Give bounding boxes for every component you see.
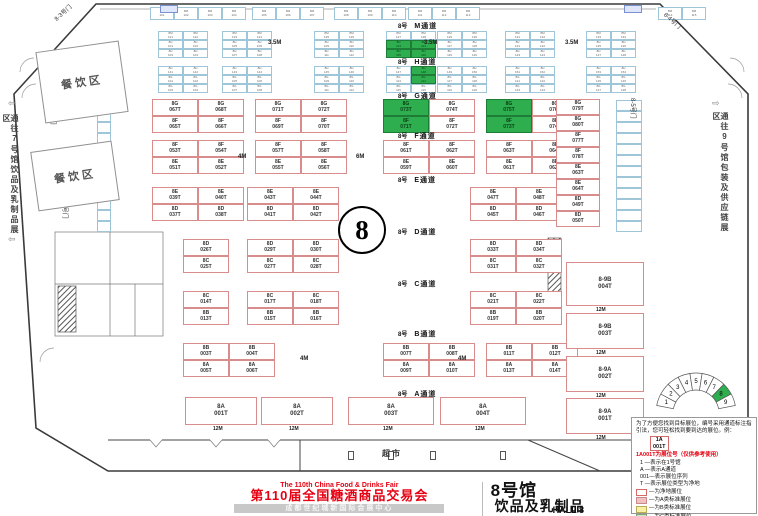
booth-code: 007T	[400, 352, 411, 358]
aisle-label: 8号H通道	[398, 57, 436, 67]
aisle-label: 8号A通道	[398, 389, 436, 399]
booth: 8F065T	[152, 116, 198, 133]
booth-code: 8-9A	[598, 367, 611, 374]
legend-example-box: 1A 001T	[650, 436, 669, 451]
booth-code: 063T	[503, 149, 514, 155]
booth: 8D045T	[470, 204, 516, 221]
hall-name-cn: 8号馆	[491, 482, 537, 499]
booth-code: 041T	[264, 213, 275, 219]
small-booth: 8H111	[314, 49, 339, 58]
small-booth: 8M126	[339, 31, 364, 40]
booth: 8C021T	[470, 291, 516, 308]
dimension-label: 4M	[300, 356, 308, 362]
booth: 8A004T	[440, 397, 526, 425]
booth-code: 061T	[503, 166, 514, 172]
small-booth: 8H148	[411, 66, 436, 75]
booth: 8E064T	[556, 179, 600, 195]
booth-code: 064T	[572, 187, 583, 193]
booth-code: 004T	[246, 352, 257, 358]
aisle-label: 8号G通道	[398, 91, 437, 101]
aisle-label: 8号E通道	[398, 175, 436, 185]
booth: 8A002T	[261, 397, 333, 425]
small-booth	[97, 221, 111, 232]
booth: 8B015T	[247, 308, 293, 325]
small-booth: 8M111	[408, 7, 432, 20]
booth-code: 030T	[310, 248, 321, 254]
booth-code: 049T	[572, 203, 583, 209]
aisle-name: D通道	[414, 229, 436, 236]
small-booth: 8M134	[611, 31, 636, 40]
small-booth: 8H144	[247, 66, 272, 75]
booth-code: 002T	[290, 411, 304, 418]
booth-code: 001T	[598, 416, 612, 423]
gate-label: 8-3号门	[52, 2, 73, 23]
small-booth: 8H103	[158, 49, 183, 58]
booth-code: 014T	[200, 300, 211, 306]
booth-code: 8-9B	[598, 324, 611, 331]
booth-code: 006T	[246, 369, 257, 375]
aisle-prefix: 8号	[398, 332, 407, 338]
aisle-name: M通道	[414, 23, 437, 30]
booth-code: 016T	[310, 317, 321, 323]
booth-code: 022T	[533, 300, 544, 306]
legend-item: T —表示展位类型为净地	[636, 481, 752, 488]
fair-title-cn: 第110届全国糖酒商品交易会	[205, 489, 474, 503]
small-booth: 8G111	[314, 84, 339, 93]
booth-code: 043T	[264, 196, 275, 202]
small-booth: 8G118	[462, 75, 487, 84]
booth-code: 014T	[549, 369, 560, 375]
booth-code: 004T	[598, 284, 612, 291]
booth-code: 072T	[446, 125, 457, 131]
booth-code: 042T	[310, 213, 321, 219]
booth-code: 040T	[215, 196, 226, 202]
booth: 8B013T	[183, 308, 229, 325]
small-booth: 8H125	[586, 40, 611, 49]
small-booth: 8M130	[462, 31, 487, 40]
booth-code: 073T	[503, 125, 514, 131]
booth: 8G080T	[556, 115, 600, 131]
aisle-prefix: 8号	[398, 392, 407, 398]
small-booth: 8G121	[505, 75, 530, 84]
small-booth: 8H126	[611, 40, 636, 49]
small-booth: 8G107	[222, 84, 247, 93]
booth: 8D030T	[293, 239, 339, 256]
booth: 8F057T	[255, 140, 301, 157]
small-booth: 8G123	[505, 84, 530, 93]
booth-code: 8A	[387, 404, 395, 411]
booth-code: 031T	[487, 265, 498, 271]
booth: 8B008T	[429, 343, 475, 360]
booth: 8F061T	[383, 140, 429, 157]
booth-code: 044T	[310, 196, 321, 202]
legend-color-rows: —为净地展位—为A类标准展位—为B类标准展位—为C类标准展位—为D类标准展位	[636, 489, 752, 516]
small-booth: 8M109	[358, 7, 382, 20]
legend-item: A —表示A通道	[636, 467, 752, 474]
small-booth: 8G108	[247, 84, 272, 93]
hall-title: 8号馆 饮品及乳制品 HALL 8 展位示意图 BEVERAGES AND DA…	[483, 482, 625, 516]
legend-row-label: —为A类标准展位	[649, 497, 691, 504]
booth: 8E043T	[247, 187, 293, 204]
note-to-hall7: 通往7号馆饮品及乳制品展区	[2, 114, 18, 244]
small-booth: 8G117	[437, 75, 462, 84]
booth: 8F062T	[429, 140, 475, 157]
booth-code: 011T	[503, 352, 514, 358]
booth: 8G073T	[383, 99, 429, 116]
small-booth: 8M107	[300, 7, 324, 20]
booth: 8C025T	[183, 256, 229, 273]
direction-arrow-icon: ⇨	[712, 98, 720, 109]
booth-code: 008T	[446, 352, 457, 358]
booth-code: 025T	[200, 265, 211, 271]
booth-code: 069T	[272, 125, 283, 131]
booth-code: 8A	[479, 404, 487, 411]
small-booth: 8H118	[462, 40, 487, 49]
legend-note: 1A001T为展位号（仅供参考使用）	[636, 452, 752, 459]
booth: 8C014T	[183, 291, 229, 308]
small-booth: 8G106	[247, 75, 272, 84]
aisle-prefix: 8号	[398, 178, 407, 184]
small-booth: 8M125	[314, 31, 339, 40]
booth: 8A013T	[486, 360, 532, 377]
small-booth: 8H154	[611, 66, 636, 75]
dimension-label: 3.5M	[424, 40, 437, 46]
small-booth: 8M103	[198, 7, 222, 20]
small-booth: 8H110	[339, 40, 364, 49]
booth-code: 027T	[264, 265, 275, 271]
booth: 8D050T	[556, 211, 600, 227]
small-booth: 8M106	[276, 7, 300, 20]
booth-code: 026T	[200, 248, 211, 254]
fire-hydrant-icon	[348, 451, 354, 460]
dining-area: 餐饮区	[35, 41, 128, 124]
aisle-label: 8号C通道	[398, 279, 436, 289]
small-booth: 8H124	[530, 49, 555, 58]
booth: 8E059T	[383, 157, 429, 174]
small-booth: 8G112	[339, 84, 364, 93]
aisle-name: A通道	[414, 391, 436, 398]
booth-code: 059T	[400, 166, 411, 172]
small-booth	[616, 177, 642, 188]
booth-code: 019T	[487, 317, 498, 323]
booth: 8E044T	[293, 187, 339, 204]
legend-swatch	[636, 497, 647, 504]
small-booth: 8G119	[437, 84, 462, 93]
small-booth: 8H117	[437, 40, 462, 49]
small-booth: 8G101	[158, 75, 183, 84]
small-booth: 8M104	[222, 7, 246, 20]
small-booth: 8G127	[586, 84, 611, 93]
hall-name-en: HALL 8	[553, 505, 625, 516]
small-booth	[616, 210, 642, 221]
dimension-label: 3.5M	[268, 40, 281, 46]
dimension-label: 4M	[238, 154, 246, 160]
small-booth: 8M128	[411, 31, 436, 40]
aisle-name: G通道	[414, 93, 436, 100]
booth-code: 056T	[318, 166, 329, 172]
booth-code: 071T	[400, 125, 411, 131]
dimension-label: 6M	[356, 154, 364, 160]
booth-code: 047T	[487, 196, 498, 202]
small-booth: 8H153	[586, 66, 611, 75]
floorplan-page: 8G067T8G068T8F065T8F066T8G071T8G072T8F06…	[0, 0, 758, 516]
small-booth: 8M115	[682, 7, 706, 20]
booth: 8F069T	[255, 116, 301, 133]
booth: 8B007T	[383, 343, 429, 360]
booth-code: 009T	[400, 369, 411, 375]
booth-code: 060T	[446, 166, 457, 172]
booth-code: 037T	[169, 213, 180, 219]
dimension-label: 12M	[475, 426, 485, 432]
dimension-label: 12M	[213, 426, 223, 432]
small-booth: 8H113	[386, 40, 411, 49]
booth-code: 021T	[487, 300, 498, 306]
supermarket-label: 超市	[382, 448, 402, 459]
small-booth: 8H123	[505, 49, 530, 58]
booth: 8F073T	[486, 116, 532, 133]
small-booth: 8H107	[222, 49, 247, 58]
booth-code: 010T	[446, 369, 457, 375]
booth: 8D026T	[183, 239, 229, 256]
small-booth: 8M113	[456, 7, 480, 20]
booth: 8E039T	[152, 187, 198, 204]
booth: 8F058T	[301, 140, 347, 157]
booth: 8E061T	[486, 157, 532, 174]
small-booth: 8G105	[222, 75, 247, 84]
booth-code: 038T	[215, 213, 226, 219]
small-booth	[616, 144, 642, 155]
small-booth: 8H120	[462, 49, 487, 58]
small-booth: 8H119	[437, 49, 462, 58]
dining-area: 餐饮区	[30, 141, 120, 212]
booth-code: 003T	[200, 352, 211, 358]
legend-item: 1 —表示在1号馆	[636, 460, 752, 467]
booth-code: 8-9A	[598, 409, 611, 416]
direction-arrow-icon: ⇦	[8, 98, 16, 109]
booth: 8E040T	[198, 187, 244, 204]
booth: 8D041T	[247, 204, 293, 221]
legend-swatch	[636, 506, 647, 513]
booth: 8G067T	[152, 99, 198, 116]
booth: 8F066T	[198, 116, 244, 133]
booth-code: 013T	[200, 317, 211, 323]
fair-title: The 110th China Food & Drinks Fair 第110届…	[205, 482, 483, 516]
utility-marker-icon	[624, 5, 642, 13]
booth-code: 001T	[214, 411, 228, 418]
small-booth: 8H149	[437, 66, 462, 75]
small-booth: 8H108	[247, 49, 272, 58]
small-booth: 8H109	[314, 40, 339, 49]
booth: 8G072T	[301, 99, 347, 116]
booth: 8C017T	[247, 291, 293, 308]
booth-code: 8A	[217, 404, 225, 411]
aisle-label: 8号D通道	[398, 227, 436, 237]
booth: 8E047T	[470, 187, 516, 204]
aisle-name: C通道	[414, 281, 436, 288]
aisle-prefix: 8号	[398, 24, 407, 30]
small-booth: 8M105	[252, 7, 276, 20]
booth: 8B011T	[486, 343, 532, 360]
note-to-hall9: 通往9号馆包装及供应链展区	[712, 112, 728, 242]
booth-code: 055T	[272, 166, 283, 172]
booth: 8D029T	[247, 239, 293, 256]
booth-code: 020T	[533, 317, 544, 323]
booth-code: 074T	[446, 108, 457, 114]
legend-row-label: —为B类标准展位	[649, 505, 691, 512]
booth-code: 067T	[169, 108, 180, 114]
booth-code: 032T	[533, 265, 544, 271]
booth: 8C027T	[247, 256, 293, 273]
small-booth	[616, 199, 642, 210]
booth-code: 077T	[572, 139, 583, 145]
booth-code: 072T	[318, 108, 329, 114]
booth: 8F053T	[152, 140, 198, 157]
aisle-prefix: 8号	[398, 230, 407, 236]
booth: 8B019T	[470, 308, 516, 325]
small-booth: 8H127	[586, 49, 611, 58]
booth: 8A009T	[383, 360, 429, 377]
booth: 8G071T	[255, 99, 301, 116]
booth: 8F077T	[556, 131, 600, 147]
booth-code: 053T	[169, 149, 180, 155]
booth: 8D033T	[470, 239, 516, 256]
small-booth: 8H151	[505, 66, 530, 75]
legend-example-bottom: 001T	[653, 444, 666, 451]
booth-code: 8A	[293, 404, 301, 411]
small-booth: 8H105	[222, 40, 247, 49]
small-booth: 8M124	[247, 31, 272, 40]
booth-code: 005T	[200, 369, 211, 375]
booth: 8D042T	[293, 204, 339, 221]
legend-swatch	[636, 489, 647, 496]
booth: 8D037T	[152, 204, 198, 221]
booth: 8-9B003T	[566, 313, 644, 349]
small-booth: 8H101	[158, 40, 183, 49]
aisle-label: 8号B通道	[398, 329, 436, 339]
small-booth: 8M123	[222, 31, 247, 40]
aisle-prefix: 8号	[398, 94, 407, 100]
small-booth: 8H146	[339, 66, 364, 75]
booth-code: 062T	[446, 149, 457, 155]
booth-code: 075T	[503, 108, 514, 114]
booth: 8C022T	[516, 291, 562, 308]
booth: 8E051T	[152, 157, 198, 174]
small-booth: 8G104	[183, 84, 208, 93]
aisle-name: H通道	[414, 59, 436, 66]
small-booth: 8G103	[158, 84, 183, 93]
legend-row: —为A类标准展位	[636, 497, 752, 504]
booth-code: 054T	[215, 149, 226, 155]
booth: 8D038T	[198, 204, 244, 221]
booth-code: 002T	[598, 374, 612, 381]
booth-code: 068T	[215, 108, 226, 114]
booth-code: 066T	[215, 125, 226, 131]
booth-code: 058T	[318, 149, 329, 155]
aisle-name: E通道	[414, 177, 436, 184]
legend-row: —为B类标准展位	[636, 505, 752, 512]
booth-code: 051T	[169, 166, 180, 172]
small-booth	[616, 221, 642, 232]
small-booth: 8H112	[339, 49, 364, 58]
aisle-label: 8号M通道	[398, 21, 437, 31]
booth-code: 015T	[264, 317, 275, 323]
small-booth: 8H102	[183, 40, 208, 49]
small-booth	[97, 210, 111, 221]
booth-code: 017T	[264, 300, 275, 306]
small-booth: 8H104	[183, 49, 208, 58]
small-booth: 8G120	[462, 84, 487, 93]
booth-code: 079T	[572, 107, 583, 113]
booth-code: 063T	[572, 171, 583, 177]
booth: 8C032T	[516, 256, 562, 273]
booth-code: 045T	[487, 213, 498, 219]
legend-row-label: —为净地展位	[649, 489, 682, 496]
booth: 8B004T	[229, 343, 275, 360]
small-booth	[616, 133, 642, 144]
booth-code: 052T	[215, 166, 226, 172]
booth-code: 050T	[572, 219, 583, 225]
small-booth: 8H143	[222, 66, 247, 75]
legend-panel: 为了方便您找到目标展位，编号采用通道标注指引法，您可轻松找到要到达的展位。例： …	[631, 417, 757, 514]
booth: 8C031T	[470, 256, 516, 273]
booth-code: 046T	[533, 213, 544, 219]
title-block: The 110th China Food & Drinks Fair 第110届…	[205, 482, 625, 516]
booth-code: 028T	[310, 265, 321, 271]
booth-code: 039T	[169, 196, 180, 202]
booth: 8E055T	[255, 157, 301, 174]
utility-marker-icon	[160, 5, 178, 13]
booth-code: 003T	[598, 331, 612, 338]
booth-code: 078T	[572, 155, 583, 161]
booth: 8-9A002T	[566, 356, 644, 392]
legend-example-top: 1A	[653, 437, 666, 444]
small-booth: 8G102	[183, 75, 208, 84]
small-booth: 8G128	[611, 84, 636, 93]
small-booth: 8H152	[530, 66, 555, 75]
dimension-label: 3.5M	[565, 40, 578, 46]
small-booth	[97, 122, 111, 133]
small-booth: 8M133	[586, 31, 611, 40]
booth: 8A001T	[185, 397, 257, 425]
small-booth: 8H145	[314, 66, 339, 75]
small-booth	[616, 188, 642, 199]
aisle-prefix: 8号	[398, 60, 407, 66]
booth: 8-9B004T	[566, 262, 644, 306]
small-booth: 8H128	[611, 49, 636, 58]
booth-code: 012T	[549, 352, 560, 358]
small-booth: 8G125	[586, 75, 611, 84]
dimension-label: 12M	[289, 426, 299, 432]
small-booth: 8G124	[530, 84, 555, 93]
dimension-label: 12M	[596, 435, 606, 441]
aisle-name: F通道	[414, 133, 435, 140]
small-booth: 8M110	[382, 7, 406, 20]
aisle-prefix: 8号	[398, 134, 407, 140]
booth-code: 057T	[272, 149, 283, 155]
booth-code: 004T	[476, 411, 490, 418]
booth: 8A006T	[229, 360, 275, 377]
booth-code: 048T	[533, 196, 544, 202]
small-booth: 8H122	[530, 40, 555, 49]
booth: 8A003T	[348, 397, 434, 425]
small-booth: 8M127	[386, 31, 411, 40]
small-booth: 8M131	[505, 31, 530, 40]
small-booth: 8M121	[158, 31, 183, 40]
booth: 8F070T	[301, 116, 347, 133]
small-booth: 8H147	[386, 66, 411, 75]
booth-code: 061T	[400, 149, 411, 155]
legend-item: 001—表示展位序列	[636, 474, 752, 481]
